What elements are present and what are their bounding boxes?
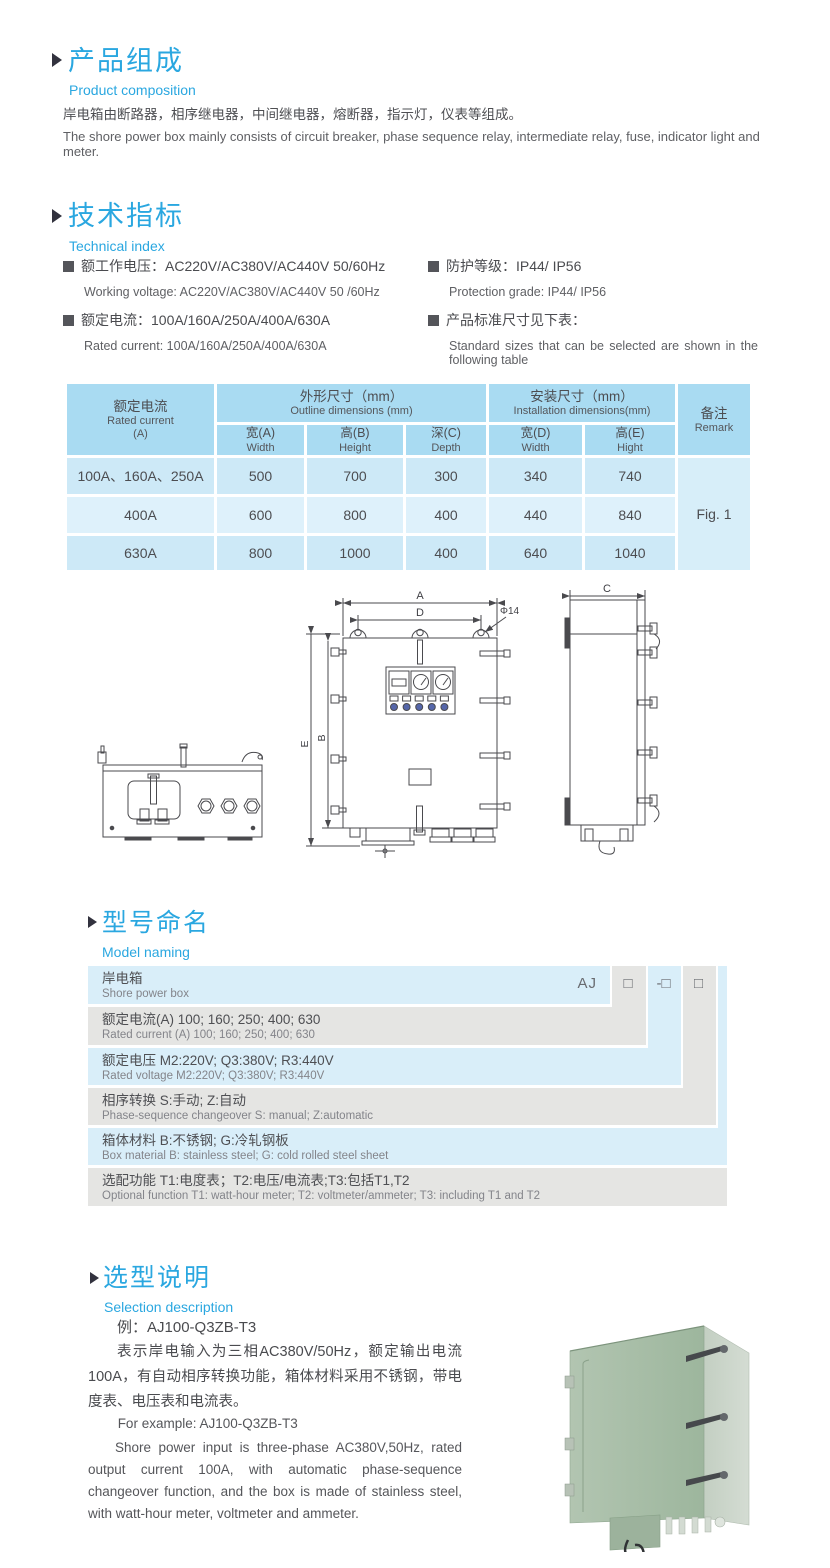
spec-item: 额定电流：100A/160A/250A/400A/630A	[63, 310, 423, 330]
product-photo	[552, 1290, 817, 1552]
code-strip-4	[716, 966, 727, 1128]
spec-item: 防护等级：IP44/ IP56	[428, 256, 758, 276]
section-marker-icon	[52, 53, 62, 67]
section-marker-icon	[88, 916, 97, 928]
dim-label-D: D	[416, 607, 424, 619]
table-row: 400A 600 800 400 440 840	[66, 496, 752, 535]
dim-label-B: B	[316, 734, 328, 741]
bottom-view-drawing	[98, 744, 263, 840]
section-subtitle-model-naming: Model naming	[102, 944, 190, 960]
dim-label-E: E	[299, 740, 311, 747]
col-header-width-a: 宽(A)Width	[216, 424, 306, 457]
col-header-rated-current: 额定电流 Rated current (A)	[66, 383, 216, 457]
selection-description-en: Shore power input is three-phase AC380V,…	[88, 1437, 462, 1525]
naming-row-rated-current: 额定电流(A) 100; 160; 250; 400; 630 Rated cu…	[88, 1007, 646, 1045]
shore-power-box-photo	[565, 1326, 749, 1552]
spec-item-en: Standard sizes that can be selected are …	[449, 339, 758, 367]
table-row: 100A、160A、250A 500 700 300 340 740 Fig. …	[66, 457, 752, 496]
dim-label-C: C	[603, 583, 611, 595]
spec-item-en: Protection grade: IP44/ IP56	[449, 285, 758, 299]
remark-cell: Fig. 1	[677, 457, 752, 572]
bullet-square-icon	[63, 261, 74, 272]
naming-row-optional-function: 选配功能 T1:电度表；T2:电压/电流表;T3:包括T1,T2 Optiona…	[88, 1168, 727, 1206]
col-header-outline: 外形尺寸（mm） Outline dimensions (mm)	[216, 383, 488, 424]
dim-label-A: A	[416, 590, 424, 602]
naming-row-product: 岸电箱 Shore power box AJ	[88, 966, 610, 1004]
spec-item: 额工作电压：AC220V/AC380V/AC440V 50/60Hz	[63, 256, 423, 276]
bullet-square-icon	[428, 261, 439, 272]
bullet-square-icon	[63, 315, 74, 326]
selection-example-cn: 例：AJ100-Q3ZB-T3	[117, 1316, 256, 1337]
front-view-drawing	[306, 598, 510, 858]
datasheet-page: 产品组成 Product composition 岸电箱由断路器，相序继电器，中…	[0, 0, 830, 1568]
model-naming-diagram: □ -□ □ 岸电箱 Shore power box AJ 额定电流(A) 10…	[88, 966, 727, 1206]
naming-row-rated-voltage: 额定电压 M2:220V; Q3:380V; R3:440V Rated vol…	[88, 1048, 681, 1085]
bullet-square-icon	[428, 315, 439, 326]
selection-example-en: For example: AJ100-Q3ZB-T3	[88, 1413, 462, 1435]
technical-drawing: A D Φ14 E B C	[60, 582, 780, 882]
col-header-remark: 备注 Remark	[677, 383, 752, 457]
technical-index-left-column: 额工作电压：AC220V/AC380V/AC440V 50/60Hz Worki…	[63, 256, 423, 364]
col-header-depth-c: 深(C)Depth	[405, 424, 488, 457]
section-marker-icon	[52, 209, 62, 223]
model-code-box-1: □	[610, 975, 646, 992]
dimensions-table: 额定电流 Rated current (A) 外形尺寸（mm） Outline …	[64, 381, 753, 573]
model-code-prefix: AJ	[577, 975, 597, 992]
dim-label-phi14: Φ14	[500, 606, 520, 617]
col-header-installation: 安装尺寸（mm） Installation dimensions(mm)	[488, 383, 677, 424]
spec-item-en: Working voltage: AC220V/AC380V/AC440V 50…	[84, 285, 423, 299]
selection-description-cn: 表示岸电输入为三相AC380V/50Hz，额定输出电流100A，有自动相序转换功…	[88, 1340, 462, 1415]
section-subtitle-selection: Selection description	[104, 1299, 233, 1315]
col-header-width-d: 宽(D)Width	[488, 424, 584, 457]
section-subtitle-product-composition: Product composition	[69, 82, 196, 98]
table-row: 630A 800 1000 400 640 1040	[66, 535, 752, 572]
section-title-product-composition: 产品组成	[68, 48, 184, 75]
spec-item: 产品标准尺寸见下表：	[428, 310, 758, 330]
naming-row-phase-sequence: 相序转换 S:手动; Z:自动 Phase-sequence changeove…	[88, 1088, 716, 1125]
model-code-box-3: □	[681, 975, 716, 992]
col-header-height-b: 高(B)Height	[306, 424, 405, 457]
model-code-box-2: -□	[646, 975, 681, 992]
section-title-technical-index: 技术指标	[68, 203, 184, 230]
naming-row-box-material: 箱体材料 B:不锈钢; G:冷轧钢板 Box material B: stain…	[88, 1128, 727, 1165]
product-composition-text-en: The shore power box mainly consists of c…	[63, 129, 783, 159]
col-header-height-e: 高(E)Hight	[584, 424, 677, 457]
section-title-model-naming: 型号命名	[102, 911, 210, 936]
section-title-selection: 选型说明	[103, 1266, 211, 1291]
spec-item-en: Rated current: 100A/160A/250A/400A/630A	[84, 339, 423, 353]
technical-index-right-column: 防护等级：IP44/ IP56 Protection grade: IP44/ …	[428, 256, 758, 378]
product-composition-text-cn: 岸电箱由断路器，相序继电器，中间继电器，熔断器，指示灯，仪表等组成。	[63, 103, 763, 123]
section-subtitle-technical-index: Technical index	[69, 238, 165, 254]
side-view-drawing	[565, 590, 660, 854]
section-marker-icon	[90, 1272, 99, 1284]
